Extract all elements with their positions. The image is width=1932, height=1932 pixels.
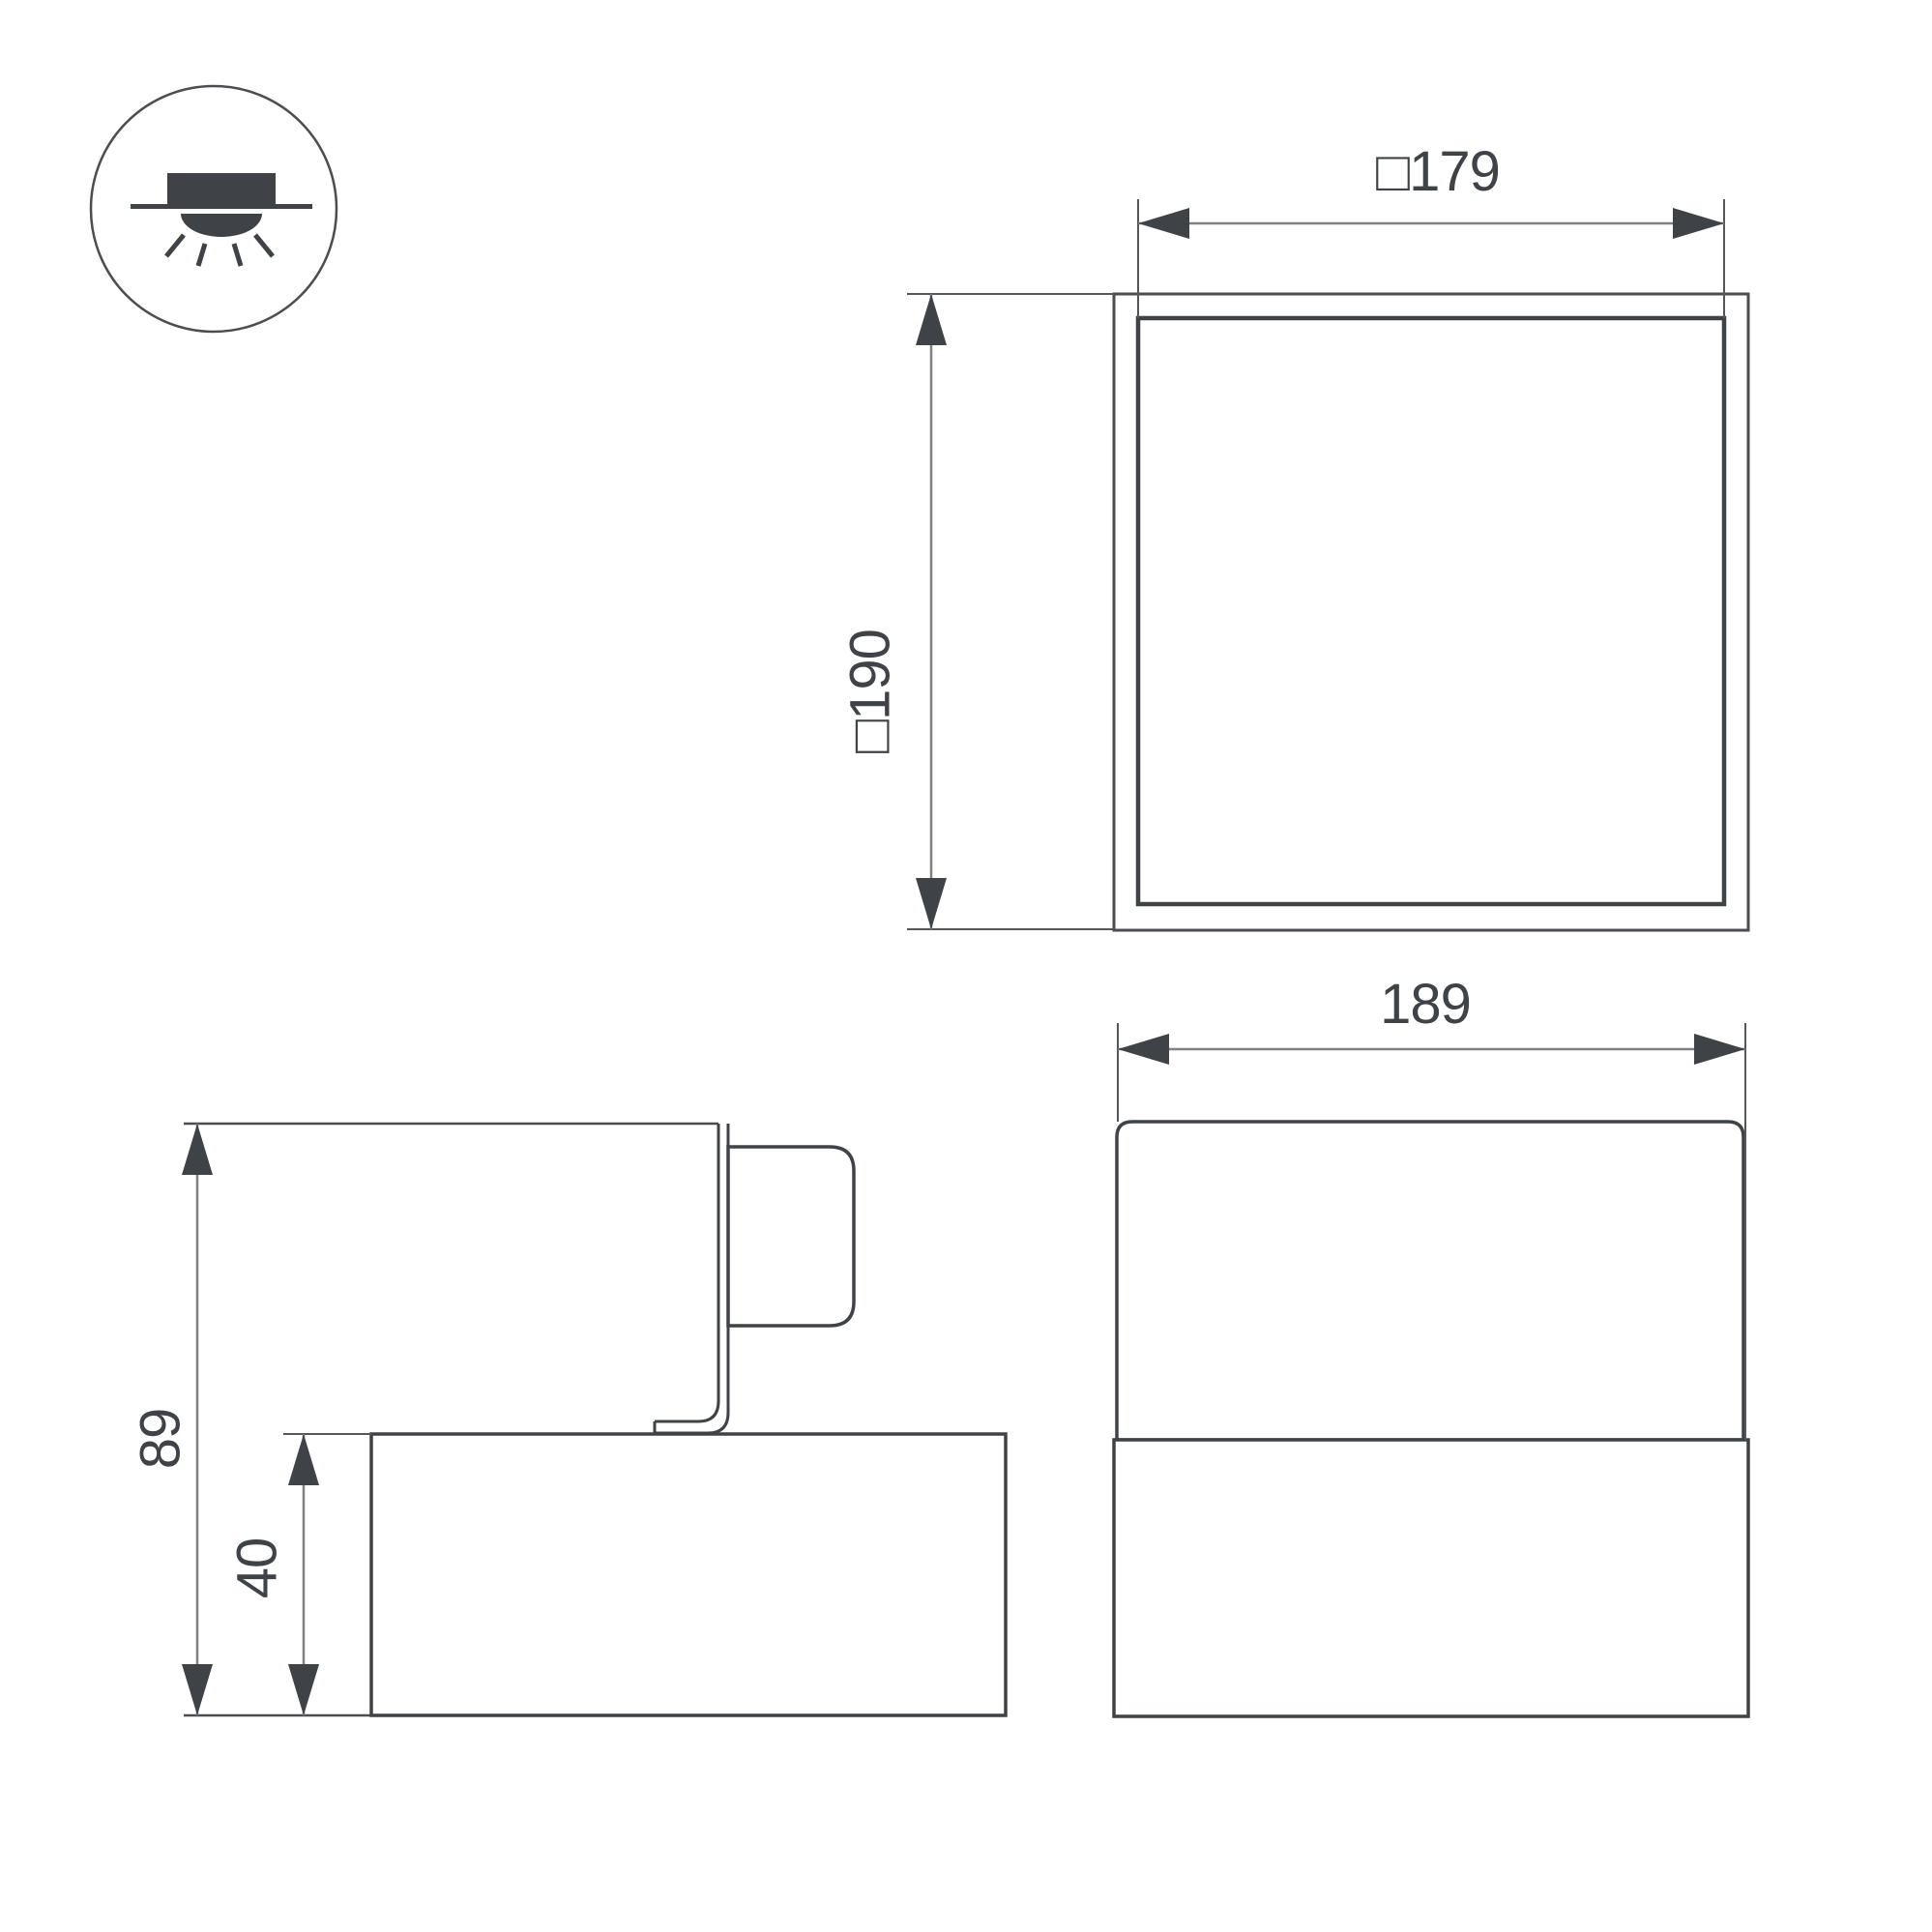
side-view: 89 40 <box>130 1124 1007 1715</box>
dimension-drawing-page: □179 □190 <box>0 0 1932 1932</box>
dim-label-89: 89 <box>130 1409 192 1470</box>
arrowhead-down <box>182 1664 213 1715</box>
front-view-diffuser <box>1117 1122 1743 1440</box>
technical-drawing: □179 □190 <box>0 0 1932 1932</box>
arrowhead-down <box>916 878 947 929</box>
top-view-inner-square <box>1138 318 1724 904</box>
arrowhead-right <box>1673 208 1724 239</box>
dim-label-40: 40 <box>226 1538 289 1599</box>
dim-179: □179 <box>1138 140 1724 318</box>
dim-label-179: □179 <box>1376 140 1500 203</box>
front-view-base <box>1114 1440 1748 1716</box>
lamp-dome-icon <box>181 214 262 237</box>
recessed-housing-icon <box>167 173 276 205</box>
bracket-inner-contour <box>655 1124 718 1421</box>
front-view: 189 <box>1114 973 1748 1716</box>
arrowhead-right <box>1694 1034 1745 1065</box>
side-view-body <box>371 1434 1006 1715</box>
dim-40: 40 <box>226 1434 372 1715</box>
mounting-bracket <box>655 1124 728 1433</box>
driver-box <box>728 1147 854 1326</box>
arrowhead-left <box>1118 1034 1169 1065</box>
arrowhead-up <box>182 1124 213 1175</box>
top-view: □179 □190 <box>839 140 1749 930</box>
dim-label-190: □190 <box>839 629 902 753</box>
top-view-outer-square <box>1114 294 1748 930</box>
arrowhead-up <box>916 294 947 345</box>
arrowhead-up <box>288 1434 319 1485</box>
light-rays-icon <box>166 235 273 266</box>
dim-label-189: 189 <box>1380 973 1471 1036</box>
mount-type-icon <box>91 86 337 332</box>
dim-89: 89 <box>130 1124 214 1715</box>
ceiling-line-icon <box>131 204 312 209</box>
dim-190: □190 <box>839 294 1115 929</box>
arrowhead-down <box>288 1664 319 1715</box>
arrowhead-left <box>1138 208 1189 239</box>
